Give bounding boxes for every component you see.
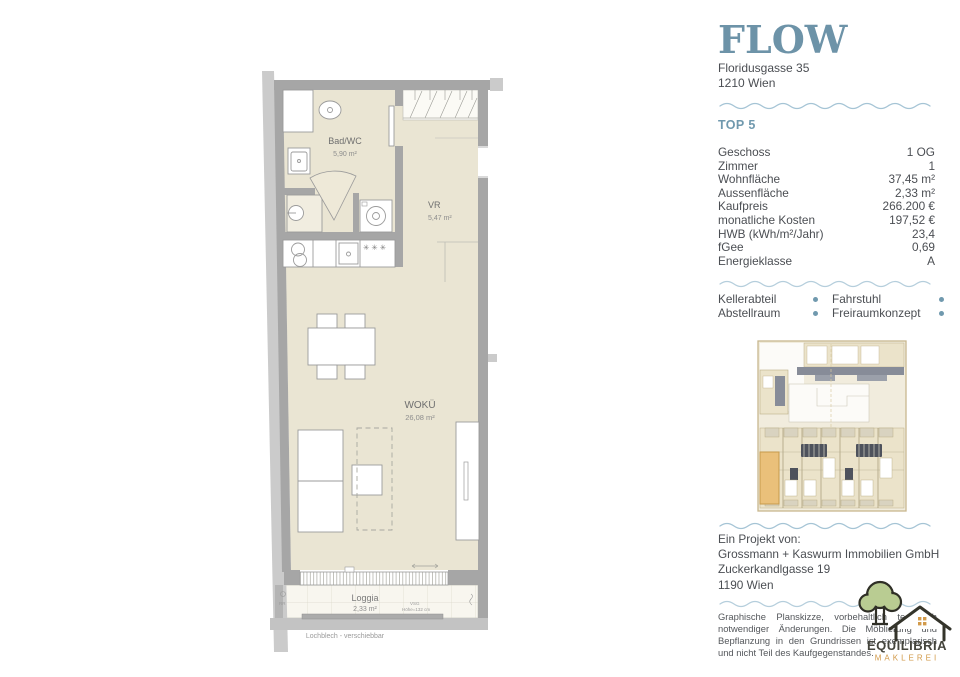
details-row: HWB (kWh/m²/Jahr) 23,4	[718, 228, 935, 242]
details-value: 1	[928, 160, 935, 174]
details-value: A	[927, 255, 935, 269]
rr-note: RR	[279, 601, 286, 606]
details-table: Geschoss 1 OG Zimmer 1 Wohnfläche 37,45 …	[718, 146, 935, 268]
amenity-item: Kellerabteil	[718, 293, 818, 306]
amenity-label: Abstellraum	[718, 307, 780, 320]
details-value: 266.200 €	[883, 200, 935, 214]
loggia-floor	[283, 585, 478, 618]
address-city: 1210 Wien	[718, 76, 938, 91]
side-table	[352, 465, 382, 495]
amenity-dot	[939, 297, 944, 302]
amenity-item: Freiraumkonzept	[832, 307, 944, 320]
details-row: Kaufpreis 266.200 €	[718, 200, 935, 214]
room-area-loggia: 2,33 m²	[353, 606, 377, 613]
wavy-divider	[718, 279, 936, 289]
equilibria-logo: EQUILIBRIA MAKLEREI	[854, 579, 960, 663]
details-row: Wohnfläche 37,45 m²	[718, 173, 935, 187]
details-value: 0,69	[912, 241, 935, 255]
unit-title: TOP 5	[718, 118, 756, 132]
details-row: Zimmer 1	[718, 160, 935, 174]
dining-table	[308, 328, 375, 365]
details-label: Wohnfläche	[718, 173, 780, 187]
details-label: fGee	[718, 241, 744, 255]
wardrobe	[456, 422, 479, 540]
details-row: Geschoss 1 OG	[718, 146, 935, 160]
details-value: 197,52 €	[889, 214, 935, 228]
perforated-sheet	[302, 614, 443, 619]
entry-door-opening	[478, 146, 488, 178]
outer-band-bottom	[270, 618, 488, 630]
project-heading: Ein Projekt von:	[718, 532, 939, 547]
project-company: Grossmann + Kaswurm Immobilien GmbH	[718, 547, 939, 562]
house-icon	[890, 607, 950, 640]
details-label: Geschoss	[718, 146, 770, 160]
stairwell-hatch	[403, 90, 478, 120]
details-value: 37,45 m²	[888, 173, 935, 187]
amenity-label: Freiraumkonzept	[832, 307, 921, 320]
amenity-label: Fahrstuhl	[832, 293, 881, 306]
tree-icon	[860, 582, 902, 624]
freezer-stars: ✳ ✳ ✳	[363, 243, 387, 252]
details-value: 23,4	[912, 228, 935, 242]
room-label-loggia: Loggia	[351, 593, 378, 603]
details-row: fGee 0,69	[718, 241, 935, 255]
amenity-dot	[813, 311, 818, 316]
details-row: Aussenfläche 2,33 m²	[718, 187, 935, 201]
amenity-item: Fahrstuhl	[832, 293, 944, 306]
amenity-label: Kellerabteil	[718, 293, 776, 306]
amenities-grid: Kellerabteil Fahrstuhl Abstellraum Freir…	[718, 293, 930, 320]
details-label: monatliche Kosten	[718, 214, 815, 228]
brand-block: FLOW Floridusgasse 35 1210 Wien	[718, 22, 938, 91]
room-area-woku: 26,08 m²	[405, 413, 435, 422]
sliding-door-track	[300, 572, 448, 585]
site-plan-thumbnail	[757, 340, 907, 512]
agency-name: EQUILIBRIA	[867, 638, 947, 653]
project-street: Zuckerkandlgasse 19	[718, 562, 939, 577]
highlighted-unit	[760, 452, 779, 504]
details-label: Energieklasse	[718, 255, 792, 269]
door-leaf	[389, 106, 394, 146]
details-label: Aussenfläche	[718, 187, 789, 201]
details-row: monatliche Kosten 197,52 €	[718, 214, 935, 228]
room-label-woku: WOKÜ	[404, 399, 435, 411]
details-value: 2,33 m²	[895, 187, 935, 201]
details-label: HWB (kWh/m²/Jahr)	[718, 228, 824, 242]
address: Floridusgasse 35 1210 Wien	[718, 61, 938, 91]
amenity-dot	[813, 297, 818, 302]
vsg-height-note: Höhe=132 cm	[402, 607, 430, 612]
wavy-divider	[718, 101, 936, 111]
details-row: Energieklasse A	[718, 255, 935, 269]
chair	[317, 365, 337, 379]
room-area-badwc: 5,90 m²	[333, 151, 357, 158]
chair	[345, 365, 365, 379]
flow-logo: FLOW	[718, 22, 938, 58]
wavy-divider	[718, 521, 936, 531]
chair	[317, 314, 337, 328]
agency-subtitle: MAKLEREI	[875, 654, 939, 663]
shaft	[283, 90, 313, 132]
chair	[345, 314, 365, 328]
amenity-item: Abstellraum	[718, 307, 818, 320]
room-area-vr: 5,47 m²	[428, 215, 452, 222]
plan-caption: Lochblech - verschiebbar	[306, 633, 385, 640]
details-label: Kaufpreis	[718, 200, 768, 214]
room-label-vr: VR	[428, 200, 441, 210]
room-label-badwc: Bad/WC	[328, 136, 362, 146]
floorplan-drawing: Bad/WC 5,90 m² VR 5,47 m² WOKÜ 26,08 m² …	[250, 58, 505, 653]
address-street: Floridusgasse 35	[718, 61, 938, 76]
amenity-dot	[939, 311, 944, 316]
details-label: Zimmer	[718, 160, 758, 174]
details-value: 1 OG	[907, 146, 935, 160]
washing-machine	[360, 200, 392, 232]
vsg-note: VSG	[410, 601, 420, 606]
